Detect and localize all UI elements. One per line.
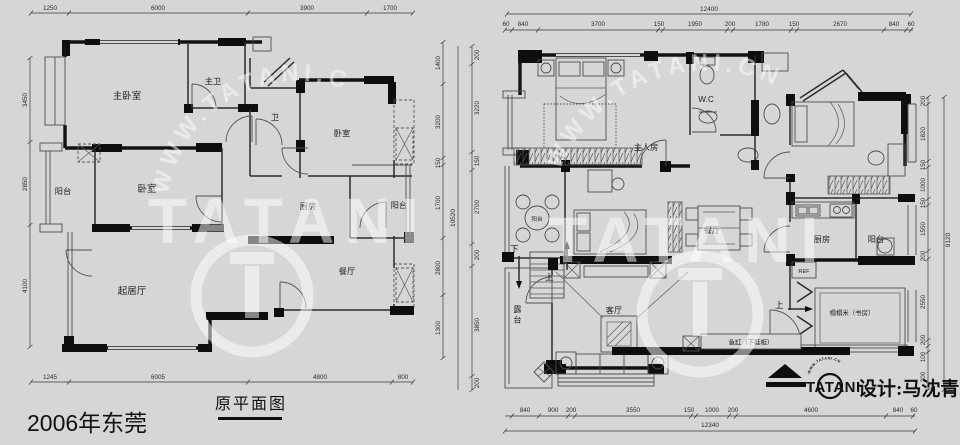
- dim-label: 100: [920, 351, 927, 362]
- svg-text:WWW.TATANI.CN: WWW.TATANI.CN: [807, 356, 841, 374]
- room-label-bath: 卫: [271, 113, 279, 122]
- dim-label: 2700: [474, 200, 481, 215]
- title-underline: [218, 417, 282, 420]
- dim-label: 840: [520, 407, 531, 414]
- dim-label: 3900: [300, 5, 315, 12]
- watermark-right: WWW.TATANI.CN TATANI: [541, 49, 829, 372]
- dim-label: 3850: [474, 318, 481, 333]
- dim-label: 200: [566, 407, 577, 414]
- room-label-terrace: 露台: [513, 305, 522, 325]
- nav-label-up-study: 上: [775, 300, 784, 310]
- plan-title: 原平面图: [215, 396, 287, 413]
- dim-label: 1000: [705, 407, 720, 414]
- dim-label: 150: [654, 21, 665, 28]
- dim-label: 150: [474, 155, 481, 166]
- designer-signature: 设计:马沈青: [858, 377, 959, 400]
- dim-label: 60: [910, 407, 918, 414]
- dim-label: 2800: [435, 261, 442, 276]
- room-label-living: 起居厅: [118, 286, 147, 297]
- dim-label: 200: [920, 334, 927, 345]
- dim-label: 1700: [383, 5, 398, 12]
- dim-label: 200: [474, 249, 481, 260]
- dim-label: 1300: [435, 321, 442, 336]
- dim-label: 2850: [22, 177, 29, 192]
- dim-label: 2550: [920, 295, 927, 310]
- tatani-logo-icon: WWW.TATANI.CN TATANI: [766, 356, 861, 398]
- dim-label: 840: [893, 407, 904, 414]
- dim-total-label: 10520: [450, 209, 457, 227]
- dim-label: 3550: [626, 407, 641, 414]
- dim-label: 4600: [804, 407, 819, 414]
- room-label-bedroom-right: 卧室: [334, 128, 350, 138]
- dim-label: 2670: [833, 21, 848, 28]
- dim-label: 6000: [151, 5, 166, 12]
- dim-label: 1950: [688, 21, 703, 28]
- dim-label: 150: [435, 157, 442, 168]
- nav-label-down: 下: [510, 244, 519, 254]
- floorplan-drawing: 主卧室 主卫 卫 卧室 阳台 卧室 厨房 阳台 起居厅 餐厅: [0, 0, 960, 445]
- room-label-dining: 餐厅: [339, 267, 355, 276]
- dim-label: 200: [474, 49, 481, 60]
- dim-label: 1245: [43, 374, 58, 381]
- room-label-wc: W.C: [698, 95, 714, 104]
- dim-label: 150: [920, 197, 927, 208]
- dim-label: 840: [518, 21, 529, 28]
- dim-label: 200: [725, 21, 736, 28]
- logo-arc-text: WWW.TATANI.CN: [807, 356, 841, 374]
- dim-total-label: 9120: [945, 232, 952, 247]
- dim-label: 3450: [22, 93, 29, 108]
- watermark-arc-text-left: WWW.TATANI.CN: [0, 0, 355, 196]
- watermark-word-left: TATANI: [148, 185, 428, 257]
- logo-word: TATANI: [806, 379, 861, 396]
- dim-label: 3700: [591, 21, 606, 28]
- dim-label: 60: [502, 21, 510, 28]
- room-label-balcony-small: 阳台: [531, 215, 543, 223]
- caption-year-city: 2006年东莞: [27, 410, 147, 436]
- dim-label: 60: [907, 21, 915, 28]
- room-label-master-room: 主人房: [634, 142, 659, 152]
- dim-label: 1780: [755, 21, 770, 28]
- footer: 原平面图 2006年东莞 WWW.TATANI.CN TATANI 设计:马沈青: [27, 356, 959, 436]
- room-label-balcony-ne: 阳台: [868, 234, 884, 244]
- dim-label: 1400: [435, 56, 442, 71]
- dim-total-label: 12340: [701, 422, 719, 429]
- dim-label: 3200: [435, 115, 442, 130]
- room-label-living-2: 客厅: [606, 305, 622, 315]
- dim-label: 150: [789, 21, 800, 28]
- dim-label: 6005: [151, 374, 166, 381]
- dim-label: 4100: [22, 279, 29, 294]
- dim-label: 3220: [474, 101, 481, 116]
- dim-label: 1550: [920, 222, 927, 237]
- room-label-balcony-left: 阳台: [55, 186, 71, 196]
- dim-label: 800: [398, 374, 409, 381]
- room-label-tatami-study: 榻榻米（书房）: [830, 308, 875, 317]
- floorplan-sheet: 主卧室 主卫 卫 卧室 阳台 卧室 厨房 阳台 起居厅 餐厅: [0, 0, 960, 445]
- svg-text:WWW.TATANI.CN: WWW.TATANI.CN: [0, 0, 355, 196]
- dim-label: 150: [920, 159, 927, 170]
- dim-label: 1820: [920, 127, 927, 142]
- watermark-word-right: TATANI: [548, 204, 828, 276]
- dim-label: 1250: [43, 5, 58, 12]
- dim-label: 900: [548, 407, 559, 414]
- dim-label: 200: [920, 95, 927, 106]
- dim-total-label: 12400: [700, 6, 718, 13]
- dim-label: 200: [728, 407, 739, 414]
- dim-label: 200: [920, 250, 927, 261]
- dim-label: 4800: [313, 374, 328, 381]
- room-label-master-bedroom: 主卧室: [113, 90, 142, 102]
- dim-label: 1000: [920, 178, 927, 193]
- dim-label: 840: [889, 21, 900, 28]
- stair-down-arrow-icon: [516, 256, 522, 289]
- dim-label: 1700: [435, 196, 442, 211]
- study-up-arrow-icon: [788, 306, 813, 312]
- dim-label: 150: [684, 407, 695, 414]
- dim-label: 200: [474, 377, 481, 388]
